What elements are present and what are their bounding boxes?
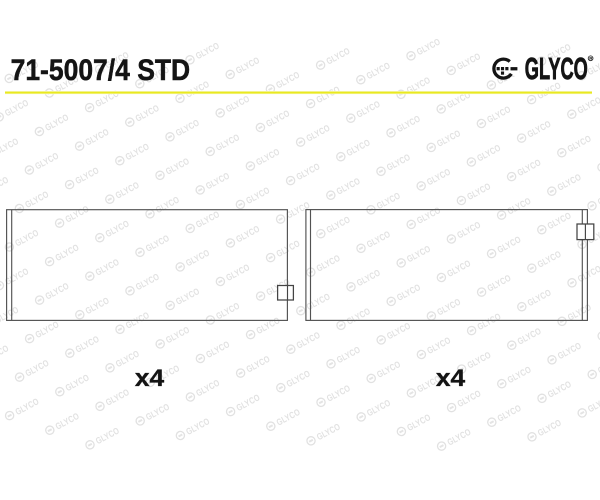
svg-text:x4: x4: [436, 365, 466, 392]
svg-text:71-5007/4 STD: 71-5007/4 STD: [11, 55, 191, 87]
svg-text:x4: x4: [135, 365, 165, 392]
svg-text:GLYCO: GLYCO: [525, 53, 588, 86]
